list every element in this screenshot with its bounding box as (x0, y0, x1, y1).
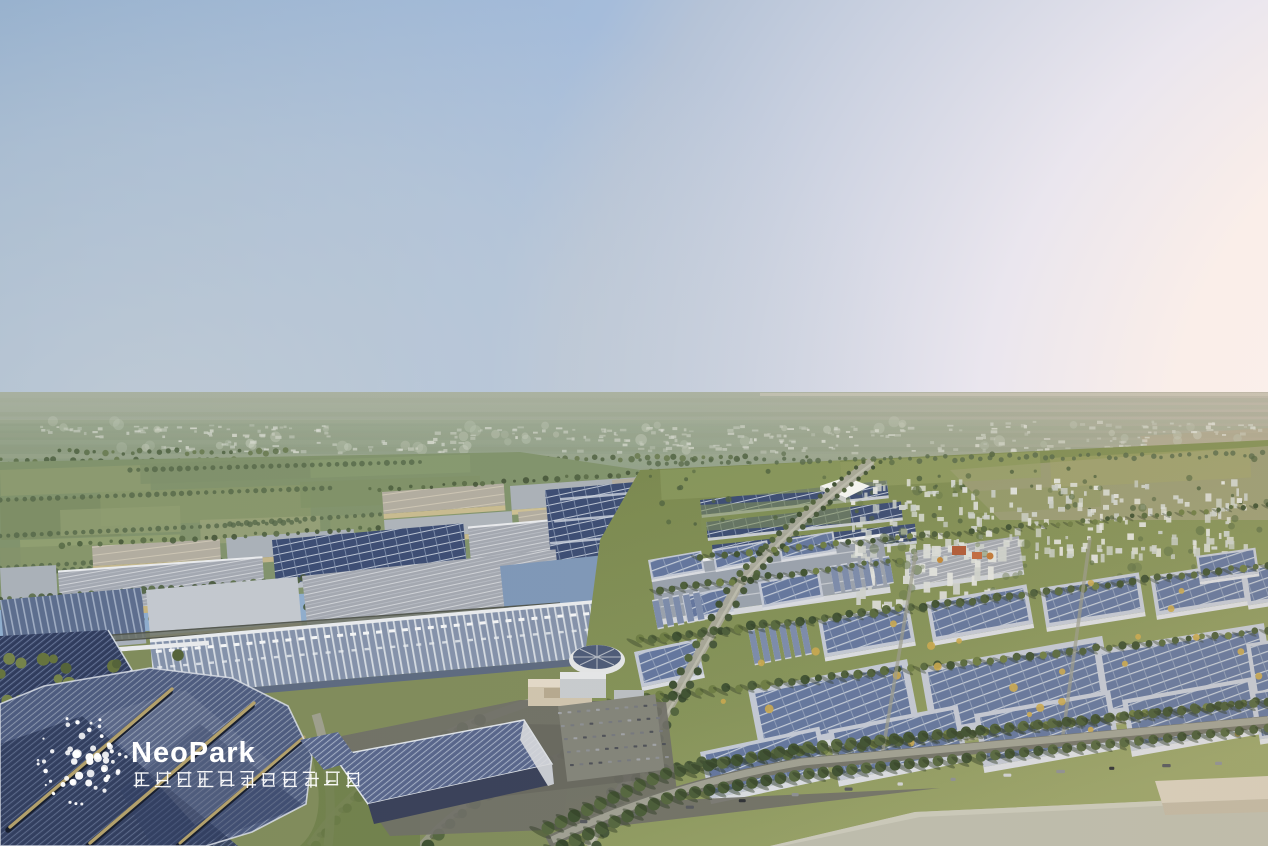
svg-text:NeoPark: NeoPark (131, 737, 256, 769)
